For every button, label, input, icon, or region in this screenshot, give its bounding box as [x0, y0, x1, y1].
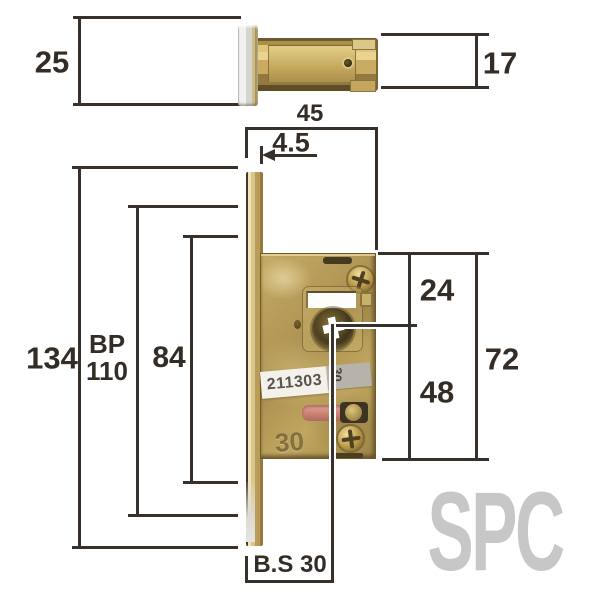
screw-bottom-icon — [336, 424, 364, 452]
dim-134-ext-bottom — [72, 546, 238, 549]
dim-label-72: 72 — [485, 344, 519, 375]
case-rect-cutout — [306, 291, 356, 308]
dim-134-ext-top — [72, 166, 238, 169]
dim-72-line — [475, 252, 478, 461]
latch-pin-hole — [344, 59, 352, 67]
dim-bs30-line — [245, 580, 334, 583]
dim-45-line — [245, 127, 378, 130]
lock-dimension-diagram: SPC 30 211303 — [0, 0, 600, 600]
dim-label-84: 84 — [152, 343, 185, 373]
case-bottom-slot — [333, 453, 363, 458]
center-ref-line-v-photo — [331, 324, 334, 462]
dim-134-line — [78, 166, 81, 549]
case-small-bracket — [360, 292, 373, 307]
dim-label-4-5: 4.5 — [272, 130, 310, 157]
latch-stop-block — [340, 402, 368, 423]
serial-number: 211303 — [266, 371, 323, 394]
brand-watermark: SPC — [427, 476, 562, 588]
dim-bp110-line — [136, 205, 139, 517]
dim-right-ext-bottom — [382, 458, 489, 461]
latch-step-notch-top — [352, 39, 376, 50]
latch-inner-panel — [268, 45, 356, 83]
dim-bp110-ext-top — [128, 205, 238, 208]
dim-label-24: 24 — [420, 275, 454, 306]
dim-label-25: 25 — [35, 47, 69, 78]
latch-stop-pin — [345, 404, 362, 421]
dim-label-bs30: B.S 30 — [253, 553, 326, 577]
dim-label-134: 134 — [26, 343, 78, 374]
dim-label-17: 17 — [483, 48, 517, 79]
dim-17-line — [475, 33, 478, 89]
dim-45-ext-right — [375, 127, 378, 250]
latch-body-top-view — [258, 38, 378, 91]
latch-step-notch-bottom — [350, 80, 376, 92]
center-ref-line-v — [331, 458, 334, 583]
dim-45-tick-left — [245, 127, 248, 158]
dim-4-5-tick — [260, 146, 263, 164]
dim-24-48-line — [408, 252, 411, 461]
dim-bp110-ext-bottom — [128, 514, 238, 517]
dim-label-bp: BP — [89, 331, 125, 357]
lock-faceplate-lower-highlight — [246, 482, 255, 542]
dim-label-48: 48 — [420, 377, 454, 408]
dim-17-ext-bottom — [381, 86, 489, 89]
center-ref-line-h — [378, 324, 417, 327]
case-stamp: 30 — [274, 428, 305, 456]
dim-25-line — [78, 16, 81, 106]
dim-bs30-tick-left — [245, 556, 248, 583]
screw-slot — [347, 429, 354, 448]
lock-case: 30 — [260, 253, 376, 459]
center-ref-line-h-photo — [332, 324, 380, 327]
case-top-slot — [323, 257, 352, 264]
dim-right-ext-top — [378, 252, 489, 255]
dim-84-line — [190, 235, 193, 484]
dim-label-45: 45 — [297, 102, 324, 126]
latch-faceplate-top-view — [238, 25, 258, 106]
dim-84-ext-bottom — [183, 481, 238, 484]
dim-25-ext-bottom — [73, 103, 241, 106]
dim-label-110: 110 — [86, 358, 128, 384]
dim-17-ext-top — [381, 33, 489, 36]
case-dimple — [294, 320, 301, 329]
dim-25-ext-top — [73, 16, 241, 19]
